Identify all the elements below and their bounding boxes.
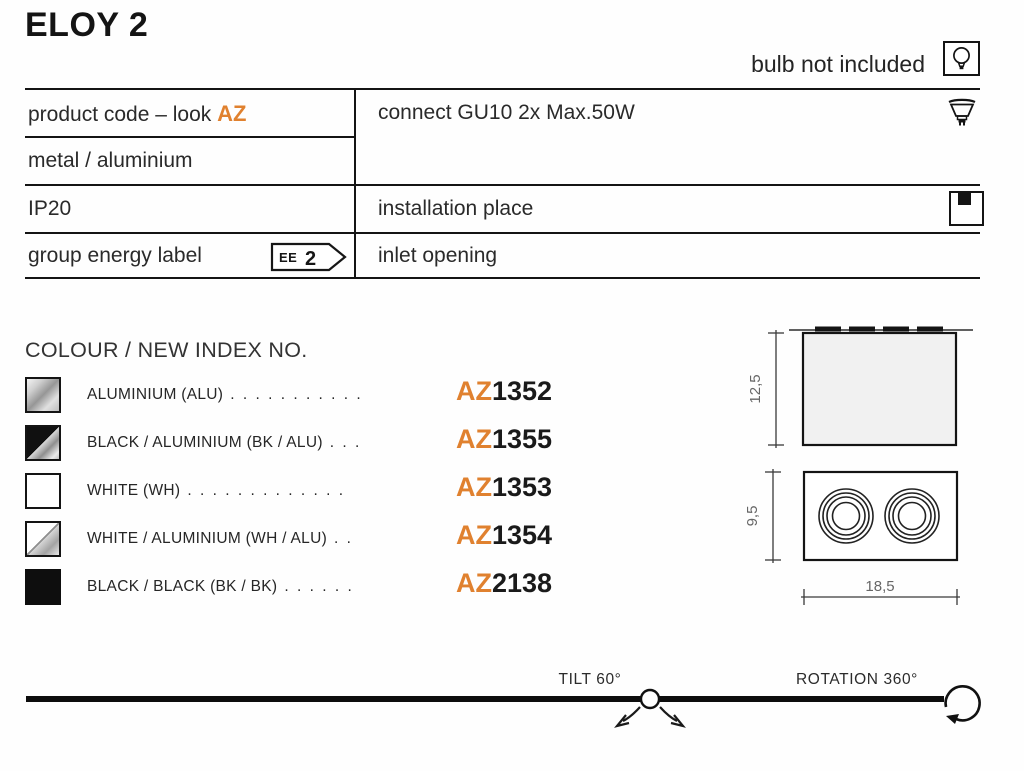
bulb-icon <box>951 46 972 72</box>
cell-energy-label: group energy label <box>28 244 202 268</box>
dot-leader: . . . <box>330 434 362 452</box>
colour-row-white: WHITE (WH) . . . . . . . . . . . . . AZ1… <box>25 471 605 511</box>
table-mid-divider-1 <box>25 184 980 186</box>
swatch-black-aluminium <box>25 425 61 461</box>
index-code: AZ1355 <box>456 424 552 455</box>
index-code-number: 1353 <box>492 472 552 502</box>
energy-badge-number: 2 <box>305 248 316 270</box>
baseline-bar <box>26 696 944 702</box>
swatch-white <box>25 473 61 509</box>
colour-row-aluminium: ALUMINIUM (ALU) . . . . . . . . . . . AZ… <box>25 375 605 415</box>
colour-label: BLACK / ALUMINIUM (BK / ALU) <box>87 434 323 452</box>
ceiling-mount-icon <box>949 191 984 226</box>
front-depth-dim-line <box>765 469 781 563</box>
energy-badge-ee-text: EE <box>279 250 297 265</box>
colour-row-black-aluminium: BLACK / ALUMINIUM (BK / ALU) . . . AZ135… <box>25 423 605 463</box>
table-bottom-border <box>25 277 980 279</box>
bulb-note-text: bulb not included <box>595 51 925 78</box>
index-code: AZ1353 <box>456 472 552 503</box>
index-code-prefix: AZ <box>456 424 492 454</box>
index-code: AZ1352 <box>456 376 552 407</box>
table-row1-left-divider <box>25 136 355 138</box>
cell-material: metal / aluminium <box>28 149 193 173</box>
cell-product-code: product code – look AZ <box>28 101 246 127</box>
datasheet-page: ELOY 2 bulb not included product code – … <box>0 0 1024 771</box>
index-code-number: 1355 <box>492 424 552 454</box>
table-top-border <box>25 88 980 90</box>
swatch-aluminium <box>25 377 61 413</box>
index-code-number: 2138 <box>492 568 552 598</box>
cell-connect: connect GU10 2x Max.50W <box>378 101 635 125</box>
ceiling-mount-icon-block <box>958 193 971 205</box>
index-code-number: 1354 <box>492 520 552 550</box>
product-look-code: AZ <box>217 101 246 126</box>
page-title: ELOY 2 <box>25 6 148 45</box>
swatch-black-black <box>25 569 61 605</box>
footer-graphics <box>0 655 1024 771</box>
energy-label-arrow-badge: EE 2 <box>270 242 350 272</box>
index-code: AZ1354 <box>456 520 552 551</box>
index-code-prefix: AZ <box>456 520 492 550</box>
colour-label: ALUMINIUM (ALU) <box>87 386 223 404</box>
dot-leader: . . . . . . . . . . . <box>230 386 362 404</box>
bulb-icon-box <box>943 41 980 76</box>
side-view-body <box>803 333 956 445</box>
dot-leader: . . <box>334 530 353 548</box>
front-width-dim-label: 18,5 <box>865 578 894 595</box>
cell-ip-rating: IP20 <box>28 197 71 221</box>
colour-row-black-black: BLACK / BLACK (BK / BK) . . . . . . AZ21… <box>25 567 605 607</box>
front-depth-dim-label: 9,5 <box>744 506 761 527</box>
table-column-divider <box>354 88 356 279</box>
dot-leader: . . . . . . <box>284 578 353 596</box>
colour-label: WHITE (WH) <box>87 482 180 500</box>
index-code-prefix: AZ <box>456 376 492 406</box>
product-code-label: product code – look <box>28 103 211 126</box>
dot-leader: . . . . . . . . . . . . . <box>187 482 345 500</box>
side-height-dim-line <box>768 330 784 448</box>
index-code-prefix: AZ <box>456 472 492 502</box>
tilt-arrows-icon <box>617 690 683 726</box>
colour-row-white-aluminium: WHITE / ALUMINIUM (WH / ALU) . . AZ1354 <box>25 519 605 559</box>
cell-inlet-opening: inlet opening <box>378 244 497 268</box>
index-code: AZ2138 <box>456 568 552 599</box>
cell-installation-place: installation place <box>378 197 533 221</box>
index-code-prefix: AZ <box>456 568 492 598</box>
colour-label: WHITE / ALUMINIUM (WH / ALU) <box>87 530 327 548</box>
table-mid-divider-2 <box>25 232 980 234</box>
swatch-white-aluminium <box>25 521 61 557</box>
rotation-arrow-icon <box>946 686 980 724</box>
colour-section-heading: COLOUR / NEW INDEX NO. <box>25 338 308 363</box>
gu10-socket-icon <box>946 96 978 128</box>
index-code-number: 1352 <box>492 376 552 406</box>
dimension-drawings: 12,5 9,5 18,5 <box>730 315 1024 615</box>
side-height-dim-label: 12,5 <box>747 374 764 403</box>
colour-label: BLACK / BLACK (BK / BK) <box>87 578 277 596</box>
